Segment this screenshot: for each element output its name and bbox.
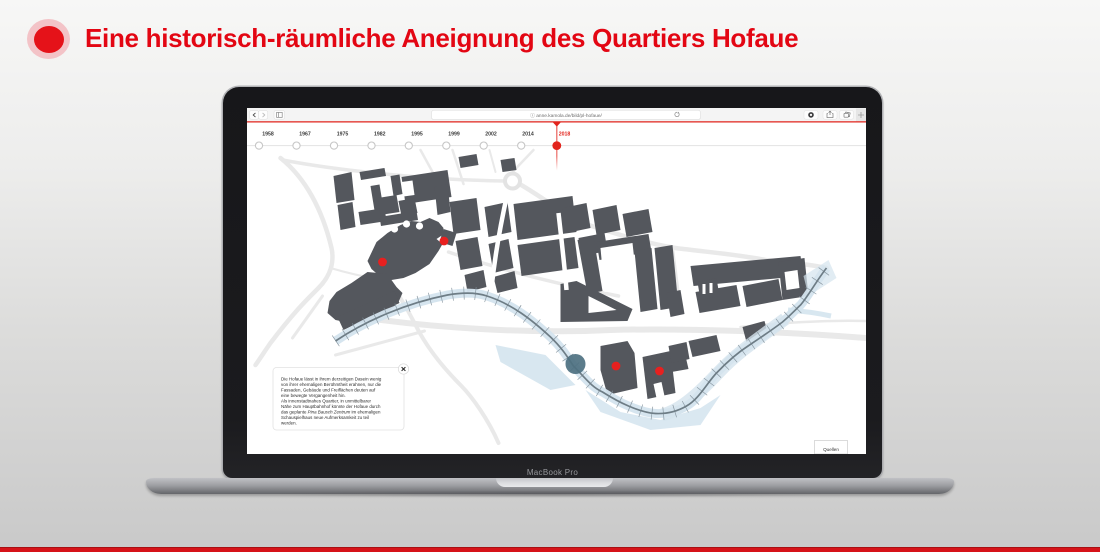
svg-text:2002: 2002 [485, 132, 497, 138]
svg-text:1999: 1999 [448, 132, 460, 138]
svg-text:2018: 2018 [558, 132, 570, 138]
svg-text:eine bewegte Vergangenheit hin: eine bewegte Vergangenheit hin. [281, 393, 346, 398]
svg-text:1975: 1975 [336, 132, 348, 138]
svg-text:von ihrer ehemaligen Berühmthe: von ihrer ehemaligen Berühmtheit erahnen… [281, 382, 382, 387]
svg-text:Fassaden, Gebäude und Freifläc: Fassaden, Gebäude und Freiflächen deuten… [281, 388, 376, 393]
svg-text:2014: 2014 [522, 132, 534, 138]
svg-text:Als innenstadtnahes Quartier,: Als innenstadtnahes Quartier, in unmitte… [281, 399, 372, 404]
svg-text:1995: 1995 [411, 132, 423, 138]
svg-text:das geplante Pina Bausch Zentr: das geplante Pina Bausch Zentrum im ehem… [281, 410, 381, 415]
svg-text:Quellen: Quellen [823, 447, 839, 452]
svg-text:werden.: werden. [281, 421, 297, 426]
svg-text:1958: 1958 [262, 132, 274, 138]
svg-text:Schauspielhaus neue Aufmerksam: Schauspielhaus neue Aufmerksamkeit zu te… [281, 415, 369, 420]
svg-text:Die Hofaue lässt in ihrem derz: Die Hofaue lässt in ihrem derzeitigen Da… [281, 377, 382, 382]
svg-text:1982: 1982 [374, 132, 386, 138]
svg-text:1967: 1967 [299, 132, 311, 138]
svg-text:Nähe zum Hauptbahnhof könnte d: Nähe zum Hauptbahnhof könnte der Hofaue … [281, 404, 381, 409]
svg-text:ⓘ anne.kamola.de/bild/pl-hofau: ⓘ anne.kamola.de/bild/pl-hofaue/ [530, 112, 602, 119]
